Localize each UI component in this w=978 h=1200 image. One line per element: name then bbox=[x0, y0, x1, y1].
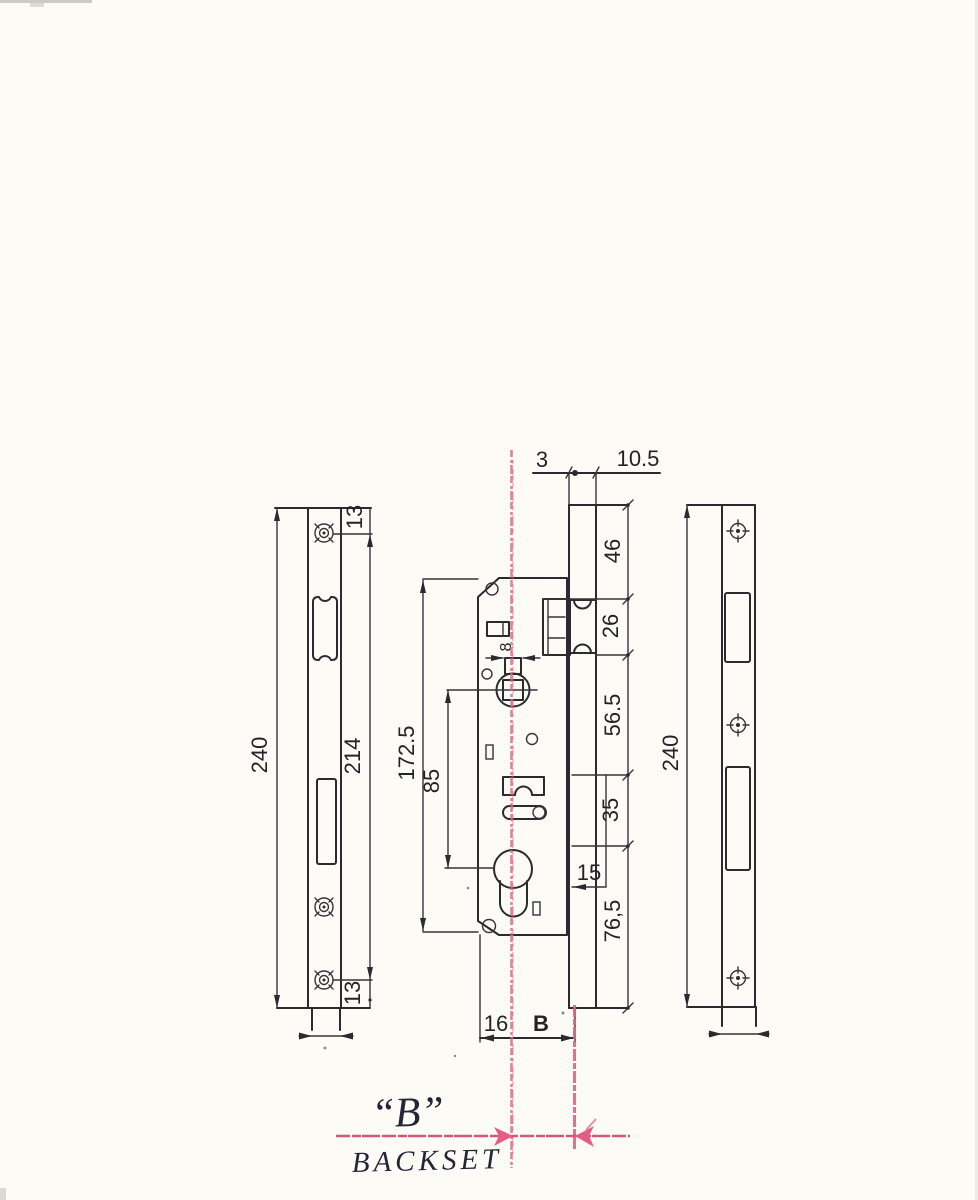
left-plate-screw-hole-top bbox=[315, 524, 333, 542]
screw-post-hole bbox=[482, 669, 492, 679]
dim-label-10-5: 10.5 bbox=[617, 446, 660, 471]
dim-left-214: 214 13 13 bbox=[333, 505, 373, 1008]
dim-top-offsets: 3 10.5 bbox=[533, 446, 660, 505]
left-plate-latch-cutout bbox=[313, 597, 337, 660]
dim-label-46: 46 bbox=[600, 539, 625, 563]
dim-label-214: 214 bbox=[340, 738, 365, 775]
dim-label-13-top: 13 bbox=[342, 505, 367, 529]
right-plate-bolt-cutout bbox=[726, 767, 750, 870]
handwritten-notes: “B” BACKSET bbox=[351, 1089, 502, 1179]
lock-body-section: 3 10.5 8 bbox=[394, 446, 660, 1042]
handwritten-b-label: “B” bbox=[371, 1089, 445, 1137]
dim-label-172-5: 172.5 bbox=[394, 725, 419, 780]
right-plate-screw-hole-bottom bbox=[727, 967, 749, 989]
dim-label-26: 26 bbox=[598, 614, 623, 638]
right-plate-screw-hole-top bbox=[727, 520, 749, 542]
dim-bottom-16-B: 16 B bbox=[480, 935, 575, 1042]
dim-label-B: B bbox=[533, 1011, 549, 1036]
left-plate-screw-hole-middle bbox=[315, 898, 333, 916]
backset-annotation bbox=[336, 450, 630, 1168]
backset-arrow-right bbox=[575, 1126, 594, 1147]
dim-172-5: 172.5 bbox=[394, 579, 478, 932]
latch-bolt bbox=[543, 599, 570, 655]
left-plate-bolt-cutout bbox=[317, 779, 336, 864]
stop-slide bbox=[487, 622, 509, 636]
right-plate-latch-cutout bbox=[725, 593, 750, 662]
lock-drawing: 240 214 13 13 3 10.5 bbox=[0, 0, 978, 1200]
right-plate-outline bbox=[722, 505, 755, 1007]
dim-label-76-5: 76,5 bbox=[600, 900, 625, 943]
dim-right-240: 240 bbox=[658, 505, 690, 1007]
case-internal-features: 8 bbox=[445, 622, 546, 917]
dim-label-left-240: 240 bbox=[247, 737, 272, 774]
dim-label-13-bottom: 13 bbox=[340, 981, 365, 1005]
dim-label-right-240: 240 bbox=[658, 735, 683, 772]
dim-right-chain: 46 26 56.5 35 15 76,5 bbox=[543, 500, 633, 1013]
dim-label-56-5: 56.5 bbox=[600, 694, 625, 737]
left-plate-outline bbox=[308, 508, 341, 1008]
right-plate-screw-hole-middle bbox=[727, 714, 749, 736]
handwritten-backset-label: BACKSET bbox=[351, 1143, 502, 1179]
lock-case-outline bbox=[478, 578, 567, 935]
dim-label-15: 15 bbox=[577, 860, 601, 885]
bolt-guide-cutout bbox=[503, 777, 544, 795]
slide-slot bbox=[503, 806, 546, 819]
right-strike-plate: 240 bbox=[658, 505, 769, 1038]
left-strike-plate: 240 214 13 13 bbox=[247, 505, 373, 1040]
dim-label-3: 3 bbox=[536, 447, 548, 472]
dim-label-16: 16 bbox=[484, 1011, 508, 1036]
left-plate-screw-hole-bottom bbox=[315, 971, 333, 989]
dim-label-35: 35 bbox=[598, 798, 623, 822]
dim-85: 85 bbox=[419, 690, 451, 868]
dim-label-85: 85 bbox=[419, 769, 444, 793]
dim-left-240: 240 bbox=[247, 508, 280, 1008]
drawing-sheet: { "title": "Mortise lock case technical … bbox=[0, 0, 978, 1200]
